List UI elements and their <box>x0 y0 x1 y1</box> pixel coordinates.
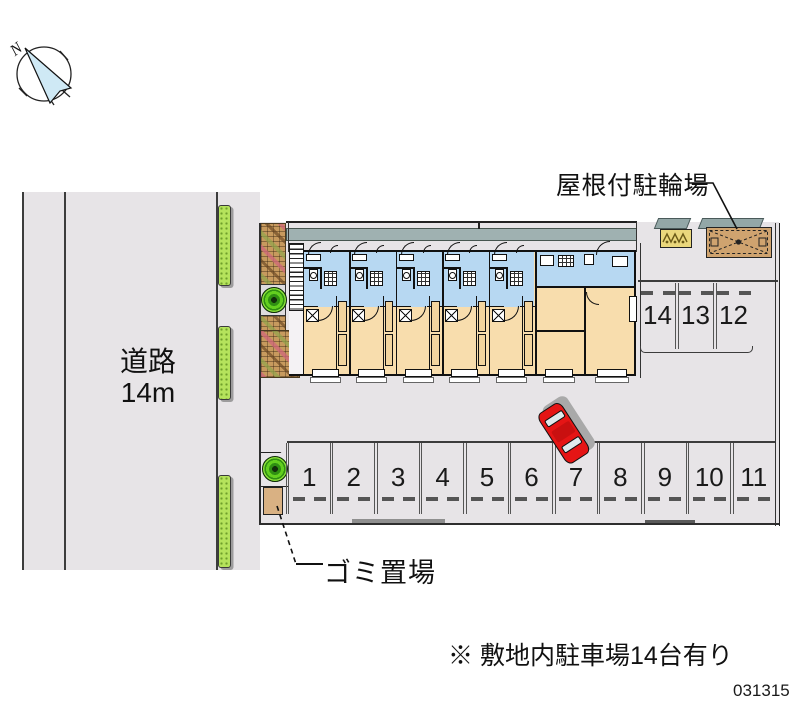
unit-2-party-wall <box>349 252 351 375</box>
parking-space-3: 3 <box>380 462 416 492</box>
parking-divider-9 <box>686 443 690 514</box>
unit-1-room-wall-left <box>303 306 318 308</box>
parking-dash-b-11 <box>758 497 770 501</box>
parking-right-dash-b-14 <box>663 291 675 295</box>
parking-space-2: 2 <box>336 462 372 492</box>
unit-1-washer <box>324 271 337 286</box>
unit-4-hall-wall <box>476 296 477 371</box>
bike-parking-label: 屋根付駐輪場 <box>556 166 709 202</box>
parking-space-1: 1 <box>291 462 327 492</box>
building-top-boundary <box>286 221 637 223</box>
hedge-3 <box>218 475 231 568</box>
unit-5-party-wall <box>489 252 491 375</box>
parking-divider-2 <box>374 443 378 514</box>
parking-space-14: 14 <box>638 300 678 330</box>
parking-divider-10 <box>730 443 734 514</box>
unit-5-sliding-door-upper <box>524 301 533 332</box>
parking-dash-b-9 <box>669 497 681 501</box>
corner-unit-side-window <box>629 296 637 322</box>
site-boundary-bottom <box>259 523 779 525</box>
parking-dash-b-2 <box>358 497 370 501</box>
parking-row-top-line <box>287 441 776 443</box>
parking-space-4: 4 <box>425 462 461 492</box>
unit-3-sliding-door-lower <box>431 334 440 366</box>
parking-dash-a-10 <box>693 497 705 501</box>
road-name: 道路 <box>78 346 218 377</box>
parking-space-5: 5 <box>469 462 505 492</box>
unit-1-sink-counter <box>306 254 321 261</box>
parking-dash-a-9 <box>648 497 660 501</box>
unit-3-window <box>405 369 432 377</box>
building-right-corridor-wall <box>636 222 637 252</box>
unit-1-wet-wall-v <box>320 267 322 289</box>
tree-1 <box>261 287 287 313</box>
parking-space-6: 6 <box>514 462 550 492</box>
corner-unit-fixture-a <box>584 254 594 265</box>
unit-3-hall-wall <box>429 296 430 371</box>
unit-3-room-wall-left <box>396 306 411 308</box>
road-width: 14m <box>78 377 218 408</box>
parking-dash-a-7 <box>559 497 571 501</box>
road-label: 道路 14m <box>78 346 218 408</box>
unit-1-window <box>312 369 339 377</box>
corner-unit-window-1 <box>545 369 573 377</box>
unit-2-hall-wall <box>383 296 384 371</box>
parking-space-9: 9 <box>647 462 683 492</box>
unit-4-sliding-door-upper <box>478 301 487 332</box>
unit-4-party-wall <box>442 252 444 375</box>
unit-3-party-wall <box>396 252 398 375</box>
unit-3-closet-box <box>399 309 412 322</box>
corner-unit-fixture-b <box>612 256 628 267</box>
parking-right-dash-a-12 <box>717 291 729 295</box>
corner-unit-window-2 <box>597 369 627 377</box>
unit-1-toilet <box>309 269 318 281</box>
unit-5-hall-wall <box>522 296 523 371</box>
corner-unit-wall-h2 <box>535 330 584 332</box>
parking-space-10: 10 <box>691 462 727 492</box>
hedge-1 <box>218 205 231 286</box>
parking-dash-a-2 <box>337 497 349 501</box>
parking-dash-b-8 <box>625 497 637 501</box>
unit-5-toilet <box>495 269 504 281</box>
unit-3-wet-wall-v <box>413 267 415 289</box>
road-lane-line <box>64 192 66 570</box>
corner-unit-balcony-step-2 <box>595 377 629 383</box>
parking-divider-4 <box>463 443 467 514</box>
unit-5-wet-wall-h <box>489 267 507 269</box>
unit-2-toilet <box>355 269 364 281</box>
parking-dash-b-6 <box>536 497 548 501</box>
unit-2-sink-counter <box>352 254 367 261</box>
unit-4-room-wall-left <box>442 306 457 308</box>
site-boundary-right <box>775 223 780 526</box>
unit-4-sink-counter <box>445 254 460 261</box>
unit-2-wet-wall-h <box>349 267 367 269</box>
parking-right-dash-b-12 <box>739 291 751 295</box>
parking-right-dash-a-13 <box>679 291 691 295</box>
eave-tick <box>478 223 480 229</box>
unit-4-wet-wall-h <box>442 267 460 269</box>
unit-5-washer <box>510 271 523 286</box>
unit-4-toilet <box>448 269 457 281</box>
parking-right-dash-b-13 <box>701 291 713 295</box>
unit-2-balcony-step <box>356 377 387 383</box>
parking-space-11: 11 <box>736 462 772 492</box>
unit-4-window <box>451 369 478 377</box>
parking-dash-a-11 <box>737 497 749 501</box>
site-plan-canvas: N 1234567891011141312 道路 14m 屋根付駐輪場 ゴミ置場… <box>0 0 800 727</box>
parking-right-bottom-line <box>640 346 753 353</box>
corner-unit-washer <box>558 255 574 267</box>
unit-5-closet-box <box>492 309 505 322</box>
unit-2-washer <box>370 271 383 286</box>
unit-2-window <box>358 369 385 377</box>
unit-4-closet-box <box>445 309 458 322</box>
bike-rack-shadow <box>654 218 691 229</box>
unit-2-sliding-door-lower <box>385 334 394 366</box>
garbage-label: ゴミ置場 <box>324 551 436 590</box>
unit-4-wet-wall-v <box>459 267 461 289</box>
building-eave-strip <box>286 228 637 241</box>
road-edge-left <box>22 192 24 570</box>
parking-space-12: 12 <box>714 300 754 330</box>
parking-dash-a-5 <box>471 497 483 501</box>
parking-dash-b-10 <box>714 497 726 501</box>
unit-5-wet-wall-v <box>506 267 508 289</box>
parking-divider-8 <box>641 443 645 514</box>
garbage-area <box>263 487 283 515</box>
unit-5-room-wall-left <box>489 306 504 308</box>
unit-3-washer <box>417 271 430 286</box>
unit-3-balcony-step <box>403 377 434 383</box>
drawing-number: 031315 <box>733 681 790 701</box>
unit-2-room-wall-left <box>349 306 364 308</box>
unit-1-sliding-door-lower <box>338 334 347 366</box>
unit-1-wet-wall-h <box>303 267 321 269</box>
parking-divider-1 <box>330 443 334 514</box>
unit-2-sliding-door-upper <box>385 301 394 332</box>
unit-1-closet-box <box>306 309 319 322</box>
parking-right-top-line <box>638 280 778 282</box>
parking-dash-b-7 <box>580 497 592 501</box>
parking-divider-5 <box>508 443 512 514</box>
site-boundary-left <box>259 223 261 524</box>
unit-4-washer <box>463 271 476 286</box>
unit-1-balcony-step <box>310 377 341 383</box>
unit-5-balcony-step <box>496 377 527 383</box>
unit-4-balcony-step <box>449 377 480 383</box>
parking-divider-0 <box>286 443 290 514</box>
unit-5-window <box>498 369 525 377</box>
parking-dash-b-3 <box>403 497 415 501</box>
parking-dash-a-6 <box>515 497 527 501</box>
parking-divider-3 <box>419 443 423 514</box>
site-note: ※ 敷地内駐車場14台有り <box>448 636 733 672</box>
parking-dash-b-1 <box>314 497 326 501</box>
parking-dash-b-5 <box>492 497 504 501</box>
parking-space-8: 8 <box>602 462 638 492</box>
corner-unit-kitchen-counter <box>540 255 554 266</box>
parking-dash-a-3 <box>382 497 394 501</box>
parking-dash-a-4 <box>426 497 438 501</box>
unit-1-hall-wall <box>336 296 337 371</box>
unit-3-sliding-door-upper <box>431 301 440 332</box>
bike-rack <box>660 229 692 248</box>
unit-5-sink-counter <box>492 254 507 261</box>
unit-4-sliding-door-lower <box>478 334 487 366</box>
parking-dash-a-1 <box>293 497 305 501</box>
tree-2 <box>262 456 288 482</box>
unit-3-wet-wall-h <box>396 267 414 269</box>
bike-rack-pattern <box>661 230 691 246</box>
unit-3-sink-counter <box>399 254 414 261</box>
unit-1-party-wall <box>303 252 305 375</box>
corner-unit-balcony-step-1 <box>543 377 575 383</box>
unit-1-sliding-door-upper <box>338 301 347 332</box>
unit-5-sliding-door-lower <box>524 334 533 366</box>
corner-unit-wall-v <box>584 288 586 375</box>
unit-2-closet-box <box>352 309 365 322</box>
parking-right-dash-a-14 <box>641 291 653 295</box>
parking-dash-b-4 <box>447 497 459 501</box>
covered-bike-shed <box>706 227 772 258</box>
corner-unit-party-wall <box>535 252 537 375</box>
parking-dash-a-8 <box>604 497 616 501</box>
bike-shed-roof-pattern <box>707 228 770 256</box>
parking-space-13: 13 <box>676 300 716 330</box>
unit-3-toilet <box>402 269 411 281</box>
hedge-2 <box>218 326 231 400</box>
unit-2-wet-wall-v <box>366 267 368 289</box>
